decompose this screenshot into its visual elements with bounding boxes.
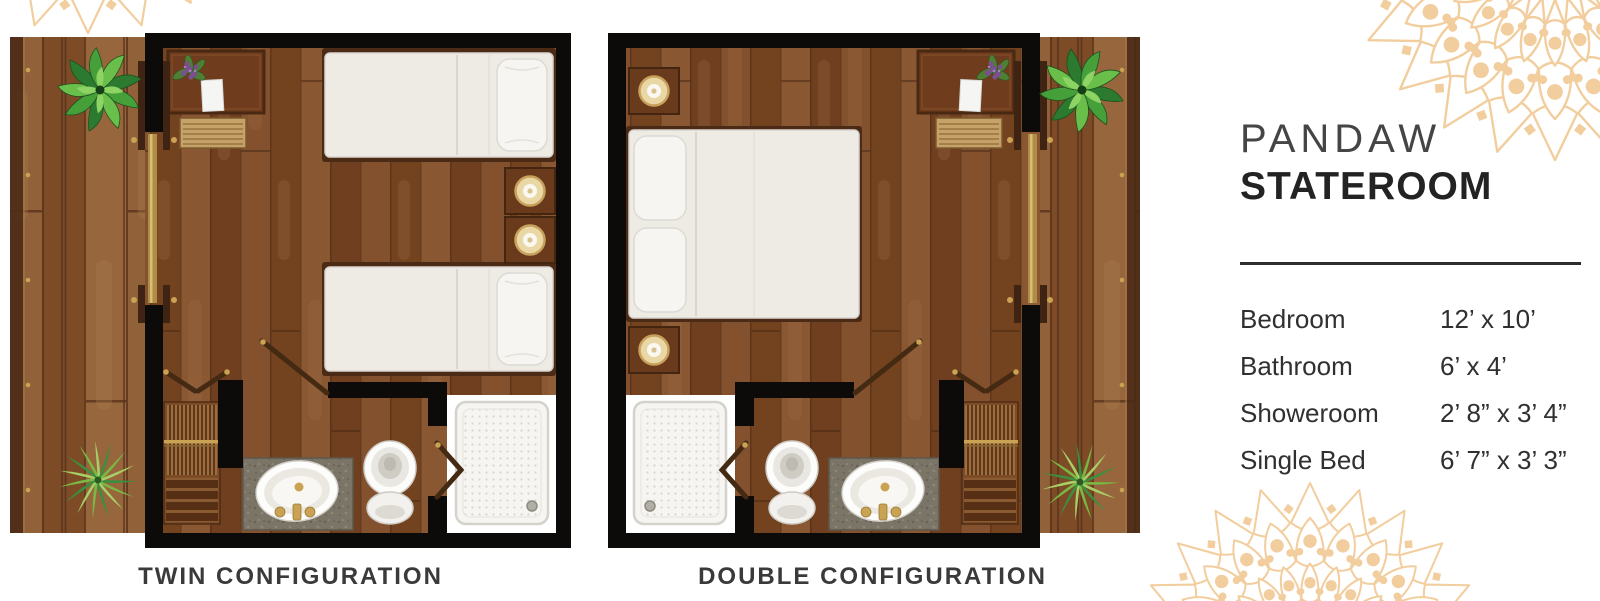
shower-drain-icon — [645, 501, 655, 511]
sink-vanity — [829, 457, 939, 530]
shower — [447, 395, 556, 533]
panel-divider — [1240, 262, 1581, 265]
spec-table: Bedroom 12’ x 10’ Bathroom 6’ x 4’ Showe… — [1240, 306, 1567, 494]
spec-label: Single Bed — [1240, 447, 1440, 494]
shower — [626, 395, 735, 533]
bench — [180, 118, 246, 148]
double-floorplan — [600, 33, 1145, 548]
twin-configuration-caption: TWIN CONFIGURATION — [10, 563, 571, 591]
spec-value: 2’ 8” x 3’ 4” — [1440, 400, 1567, 447]
spec-value: 6’ 7” x 3’ 3” — [1440, 447, 1567, 494]
wardrobe — [164, 402, 220, 524]
desk — [918, 51, 1014, 113]
spec-label: Bathroom — [1240, 353, 1440, 400]
nightstand-lamp-1 — [629, 68, 679, 114]
shower-drain-icon — [527, 501, 537, 511]
sink-vanity — [243, 457, 353, 530]
nightstand-lamp-1 — [505, 168, 555, 214]
double-configuration-caption: DOUBLE CONFIGURATION — [600, 563, 1145, 591]
toilet — [766, 441, 818, 524]
page-title: STATEROOM — [1240, 167, 1492, 206]
info-panel: PANDAW STATEROOM — [1240, 119, 1492, 206]
deck — [1040, 37, 1140, 533]
spec-label: Showeroom — [1240, 400, 1440, 447]
twin-bed-2 — [322, 262, 556, 376]
spec-row: Showeroom 2’ 8” x 3’ 4” — [1240, 400, 1567, 447]
wardrobe — [962, 402, 1018, 524]
mandala-bottom-icon — [1134, 483, 1486, 601]
bench — [936, 118, 1002, 148]
twin-bed-1 — [322, 48, 556, 162]
twin-floorplan — [10, 33, 571, 548]
mandala-top-left-icon — [0, 0, 279, 33]
spec-value: 12’ x 10’ — [1440, 306, 1536, 353]
nightstand-lamp-2 — [629, 327, 679, 373]
brand-name: PANDAW — [1240, 119, 1492, 159]
spec-label: Bedroom — [1240, 306, 1440, 353]
spec-row: Bathroom 6’ x 4’ — [1240, 353, 1567, 400]
toilet — [364, 441, 416, 524]
spec-row: Bedroom 12’ x 10’ — [1240, 306, 1567, 353]
desk — [168, 51, 264, 113]
spec-value: 6’ x 4’ — [1440, 353, 1507, 400]
double-bed — [626, 126, 862, 322]
spec-row: Single Bed 6’ 7” x 3’ 3” — [1240, 447, 1567, 494]
nightstand-lamp-2 — [505, 217, 555, 263]
